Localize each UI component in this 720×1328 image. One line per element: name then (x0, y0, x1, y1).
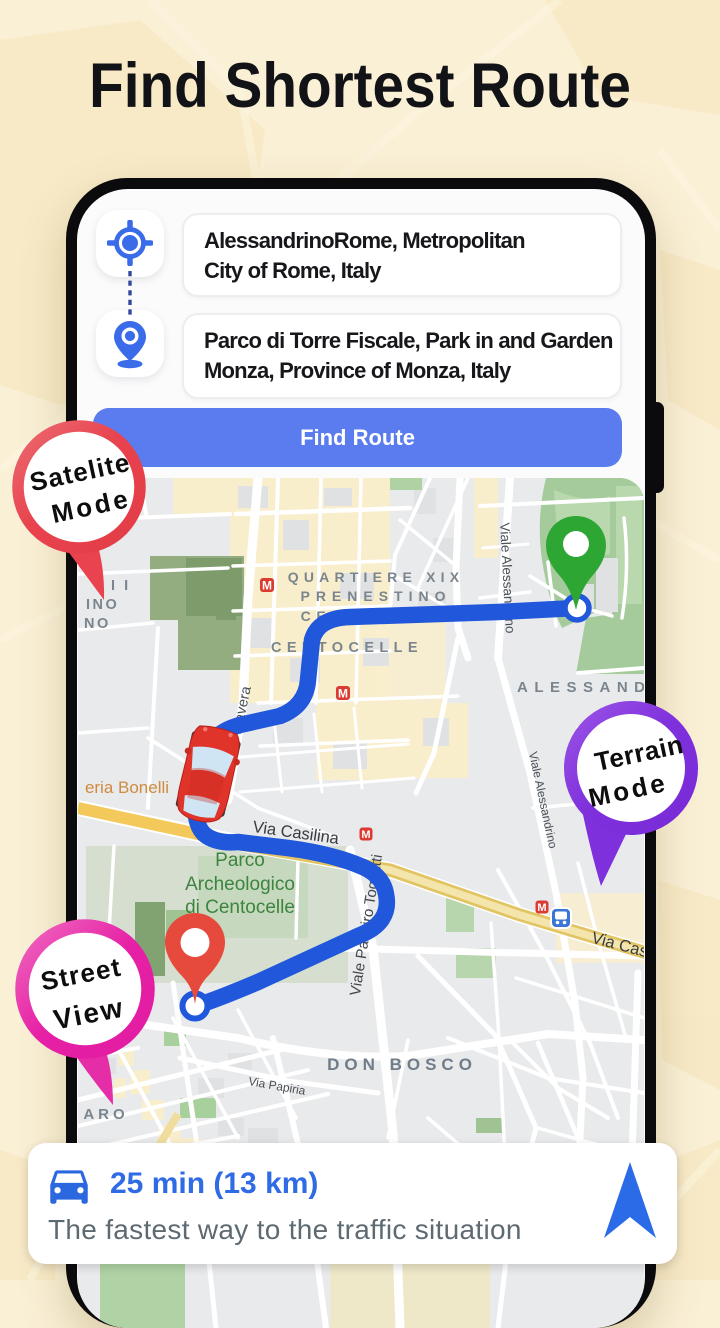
svg-text:M: M (262, 579, 272, 593)
svg-text:M: M (361, 829, 370, 841)
svg-text:PRENESTINO: PRENESTINO (300, 588, 451, 604)
svg-text:CENTOCELLE: CENTOCELLE (271, 640, 423, 656)
svg-text:eria Bonelli: eria Bonelli (85, 778, 169, 797)
svg-text:NO: NO (84, 616, 111, 632)
svg-text:Archeologico: Archeologico (185, 874, 295, 895)
svg-text:M: M (338, 687, 348, 701)
svg-text:M: M (537, 902, 546, 914)
svg-text:QUARTIERE XIX: QUARTIERE XIX (288, 569, 465, 585)
svg-text:Parco: Parco (215, 850, 265, 871)
svg-text:DON BOSCO: DON BOSCO (327, 1055, 477, 1074)
